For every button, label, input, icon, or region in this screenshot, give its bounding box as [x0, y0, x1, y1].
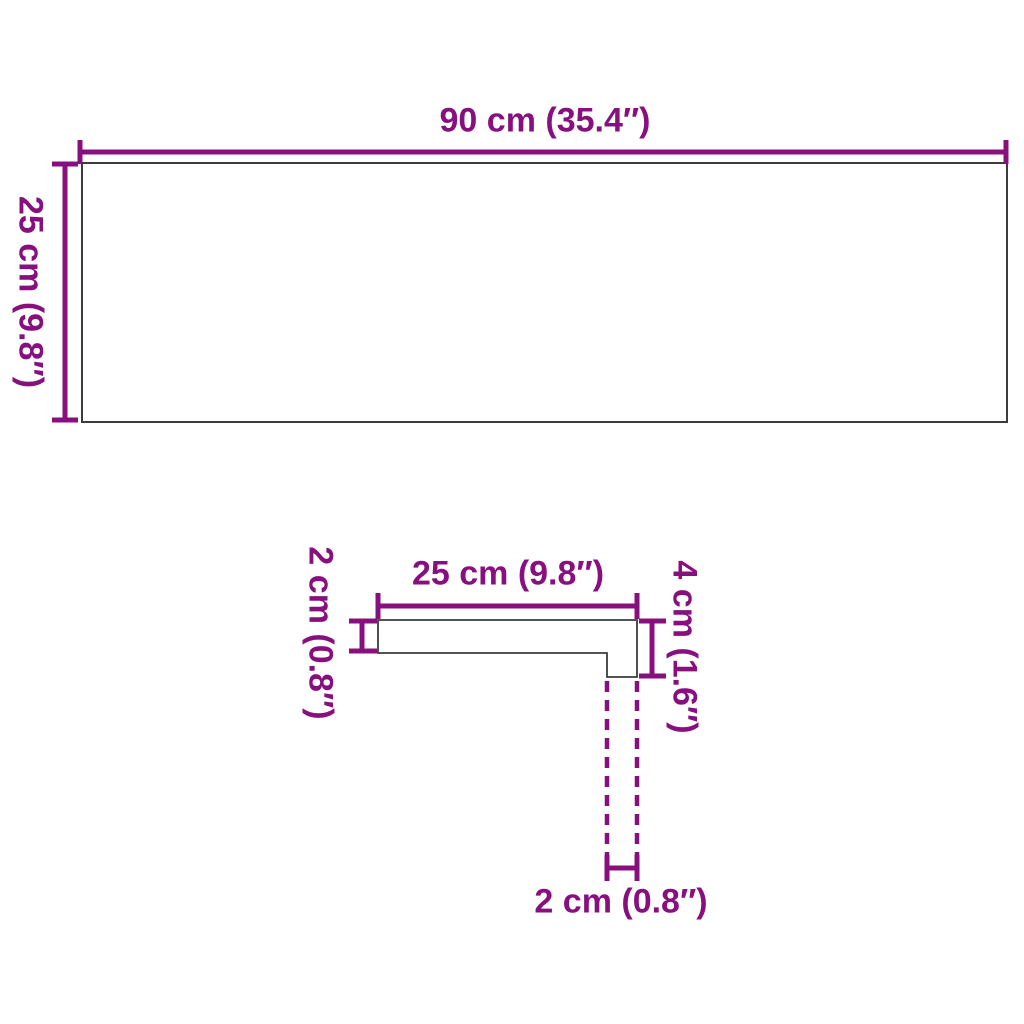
profile-nose-height-label: 4 cm (1.6″)	[665, 560, 702, 733]
diagram-linework	[0, 0, 1024, 1024]
profile-thickness-label: 2 cm (0.8″)	[301, 546, 338, 719]
top-view-outline	[82, 163, 1007, 422]
profile-nose-width-label: 2 cm (0.8″)	[534, 883, 707, 920]
profile-outline	[378, 620, 637, 677]
dimension-diagram: 90 cm (35.4″) 25 cm (9.8″) 25 cm (9.8″) …	[0, 0, 1024, 1024]
profile-width-label: 25 cm (9.8″)	[412, 555, 604, 592]
top-view-depth-label: 25 cm (9.8″)	[11, 196, 48, 388]
top-view-width-label: 90 cm (35.4″)	[440, 102, 651, 139]
